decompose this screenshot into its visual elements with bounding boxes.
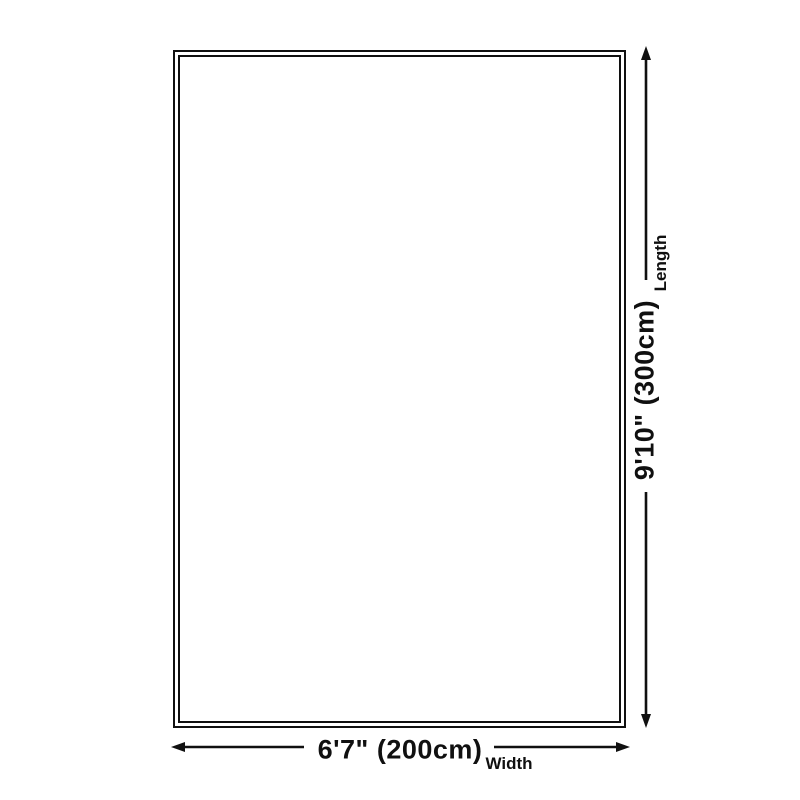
rug-outline (173, 50, 626, 728)
arrow-down-icon (641, 714, 651, 728)
arrow-right-icon (616, 742, 630, 752)
rug-inner-outline (178, 55, 621, 723)
arrow-up-icon (641, 46, 651, 60)
width-value: 6'7" (200cm) (318, 735, 483, 766)
rug-size-diagram: 9'10" (300cm) Length 6'7" (200cm) Width (0, 0, 800, 800)
length-label: Length (651, 235, 671, 292)
arrow-left-icon (171, 742, 185, 752)
length-value: 9'10" (300cm) (630, 300, 661, 480)
width-label: Width (485, 754, 532, 774)
